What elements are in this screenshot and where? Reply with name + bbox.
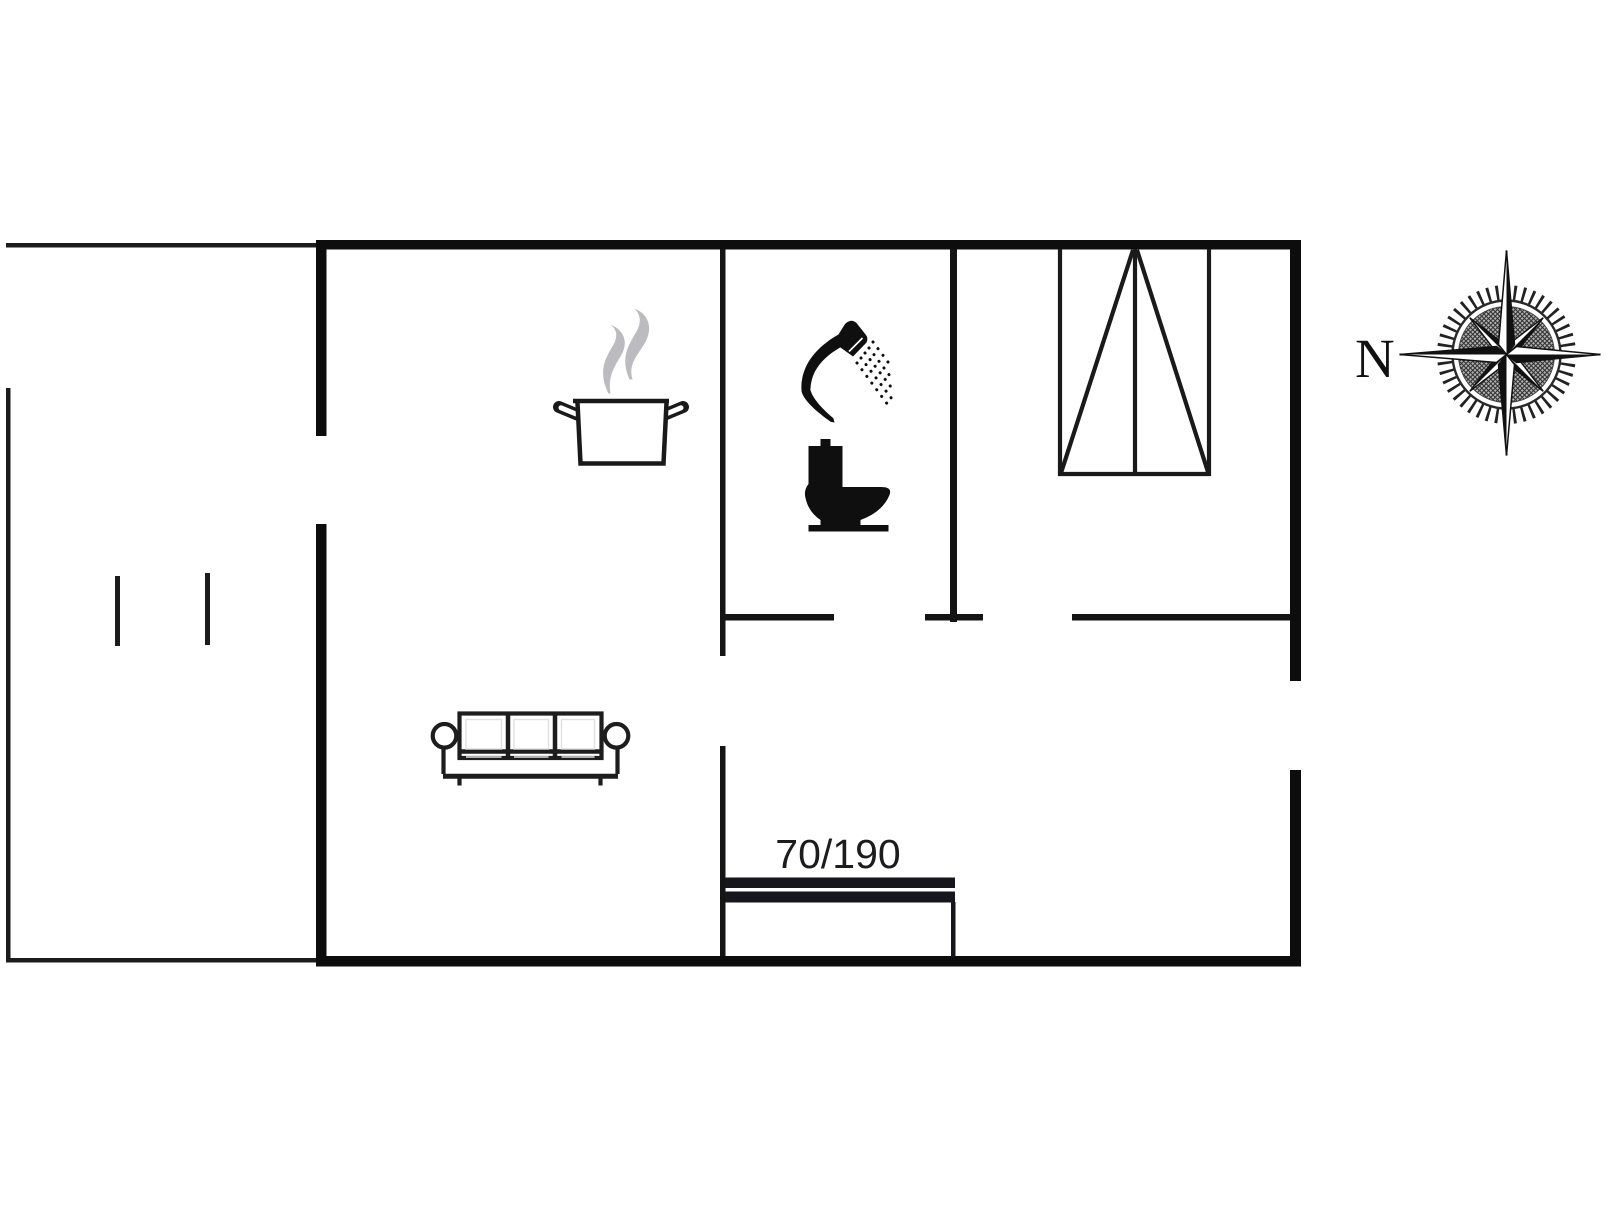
svg-text:N: N <box>1355 328 1395 389</box>
svg-text:70/190: 70/190 <box>775 831 900 877</box>
